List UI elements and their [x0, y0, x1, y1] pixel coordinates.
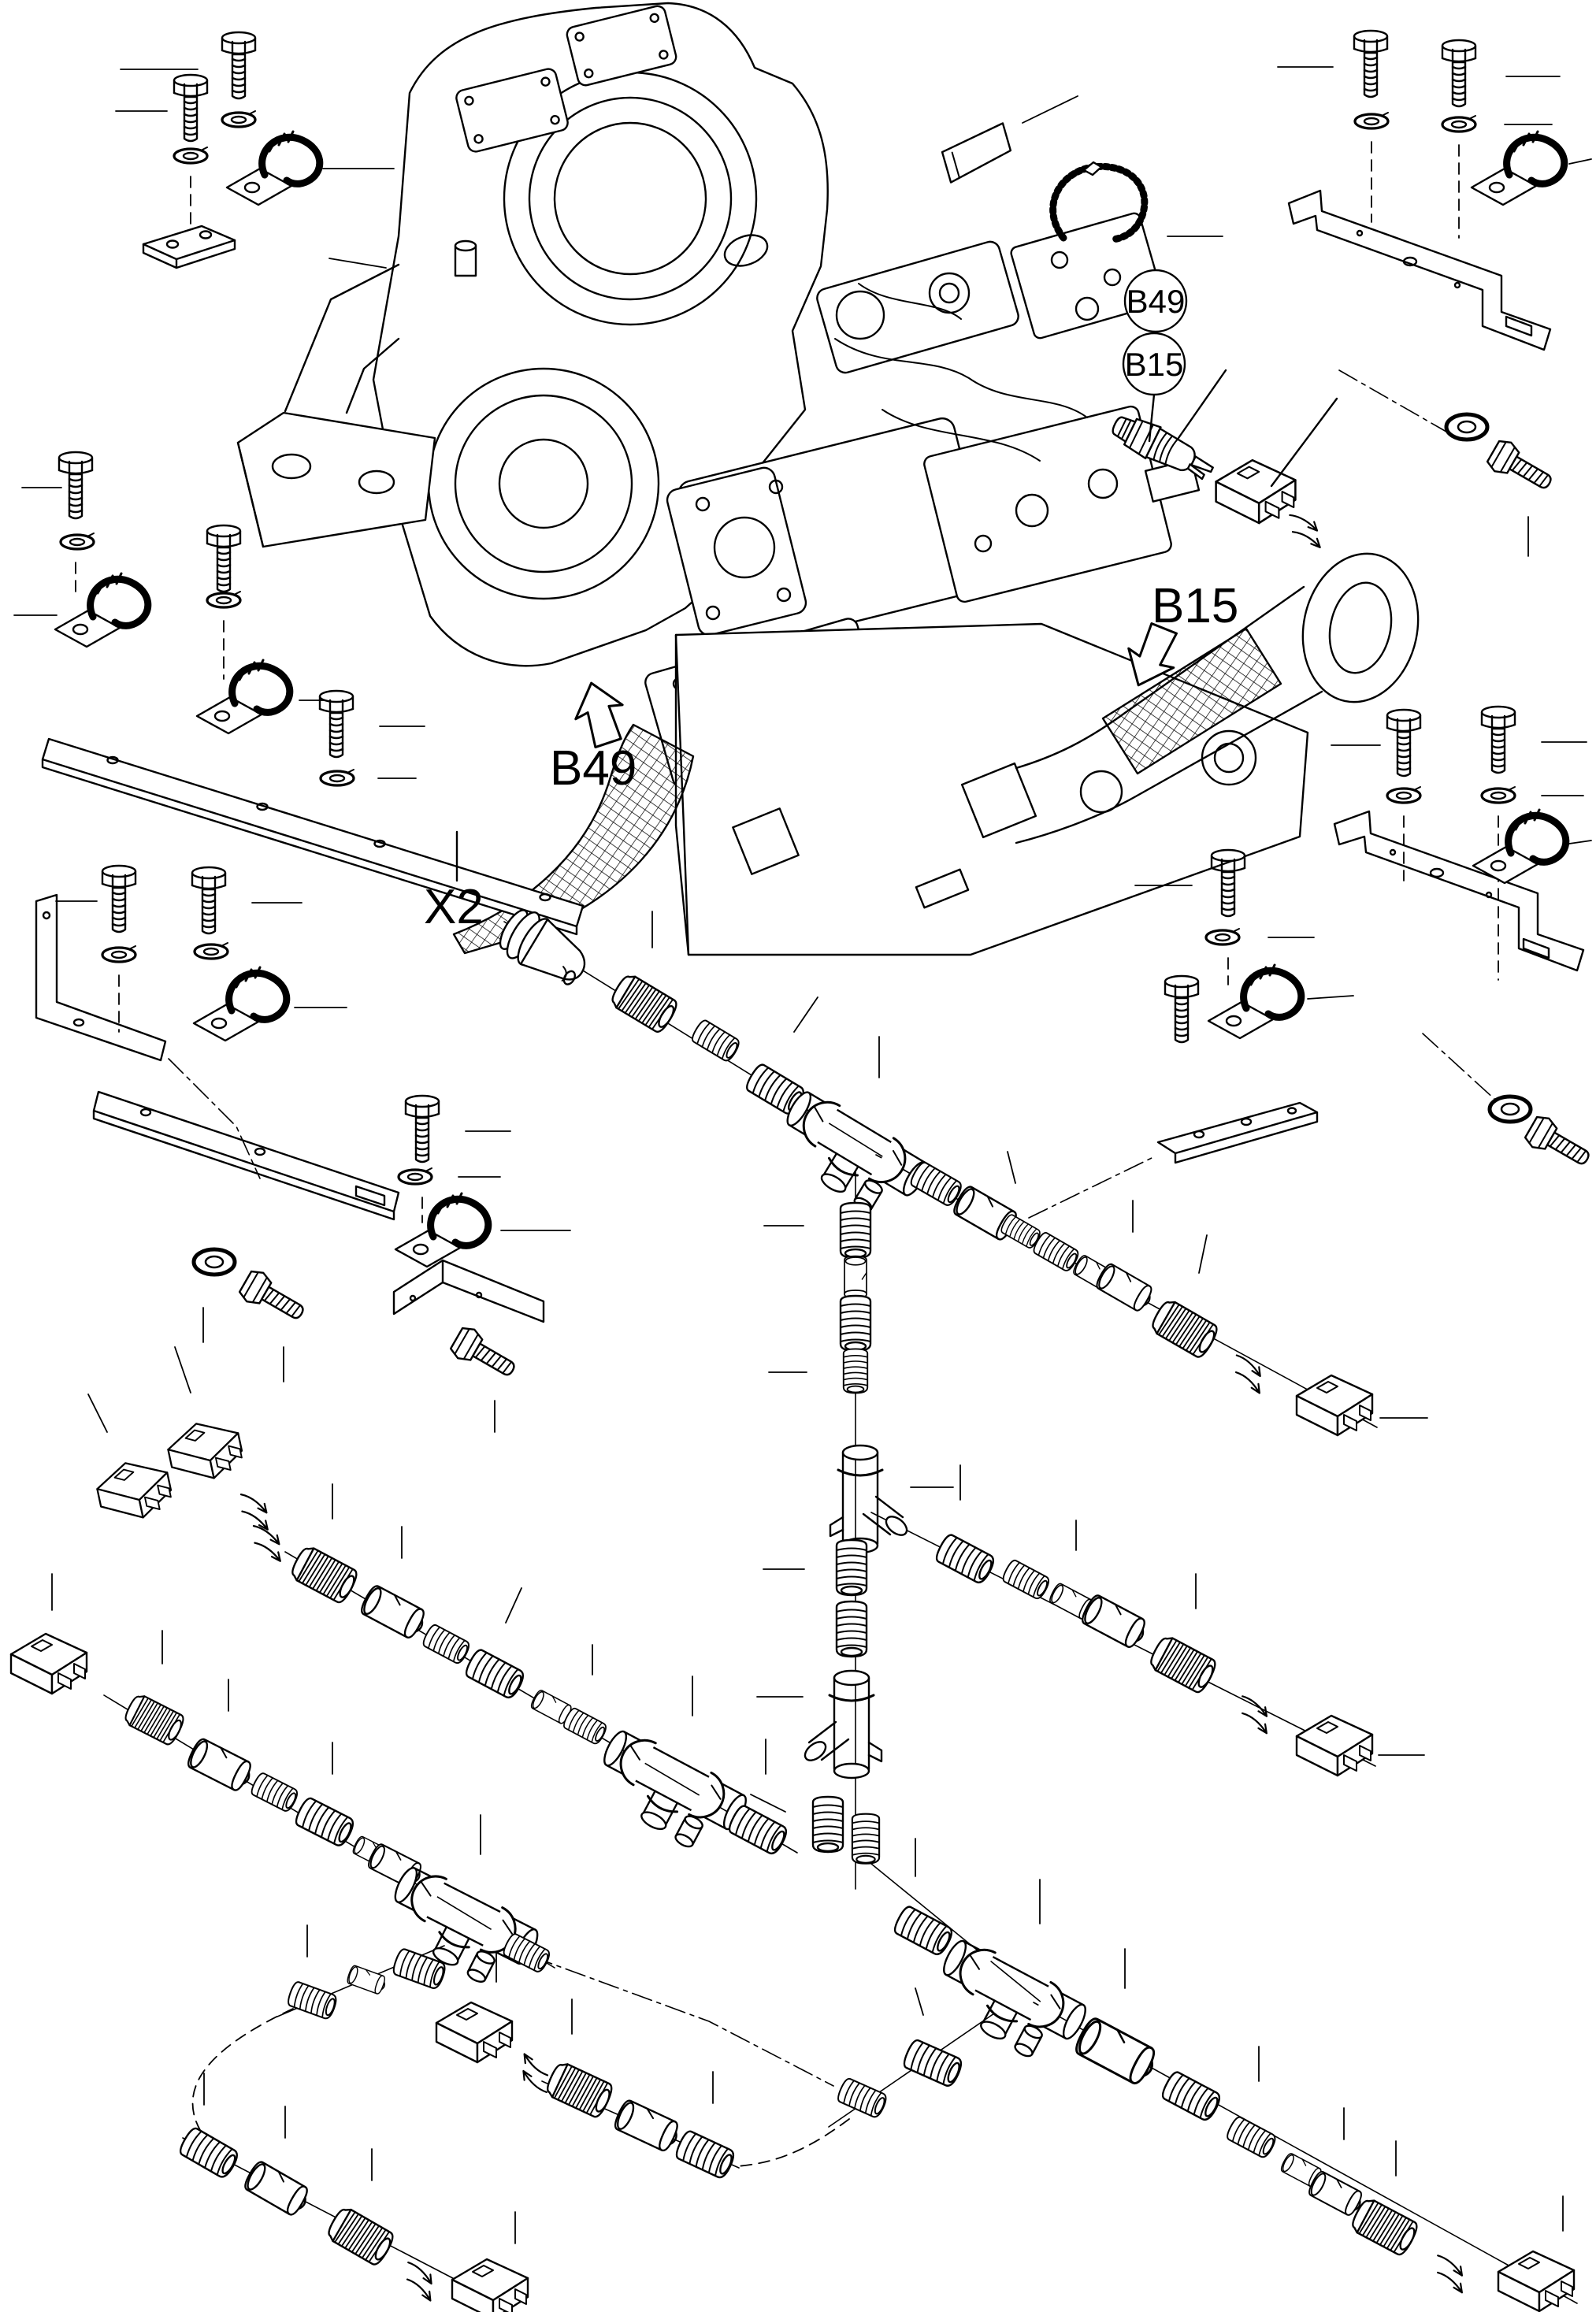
hex-bolt [1354, 31, 1387, 97]
part-leader-line [329, 258, 386, 268]
threaded-fitting [1001, 1559, 1052, 1601]
balloon-b49-label: B49 [1126, 283, 1186, 320]
hex-bolt [207, 525, 240, 592]
flat-washer [1490, 1097, 1531, 1122]
part-leader-line [915, 1988, 923, 2015]
diagram-page: B49 B15 B15 B49 X2 [0, 0, 1596, 2312]
lock-washer [1355, 113, 1388, 128]
lock-washer [61, 533, 94, 549]
wire-leads [1285, 515, 1326, 547]
threaded-fitting [852, 1814, 879, 1864]
cable-clamp [1472, 132, 1564, 205]
label-b15: B15 [1152, 579, 1238, 633]
hex-screw [1523, 1113, 1595, 1174]
part-leader-line [88, 1394, 107, 1432]
b49-pointer-arrow-icon [568, 677, 632, 750]
flat-washer [1446, 414, 1487, 440]
hex-bolt [1165, 976, 1198, 1042]
hex-bolt [320, 691, 353, 757]
tee-fitting [584, 1724, 752, 1863]
cable-clamp [197, 660, 290, 733]
threaded-fitting [837, 1601, 867, 1657]
cable-clamp [194, 967, 287, 1041]
two-pin-connector [164, 1416, 246, 1486]
cable-clamp [55, 573, 148, 647]
coupling-sleeve [185, 1737, 255, 1794]
wire-leads [233, 1494, 276, 1530]
part-leader-line [1569, 841, 1591, 844]
lock-washer [399, 1168, 432, 1184]
coupling-sleeve [1094, 1262, 1156, 1313]
lock-washer [321, 770, 354, 785]
lock-washer [195, 943, 228, 959]
two-pin-connector [436, 2002, 512, 2062]
lock-washer [1206, 929, 1239, 944]
threaded-fitting [177, 2126, 240, 2180]
knurled-coupling-nut [544, 2060, 614, 2119]
knurled-coupling-nut [288, 1544, 359, 1605]
tee-fitting [923, 1934, 1092, 2073]
part-leader-line [1199, 1235, 1207, 1273]
lock-washer [174, 147, 207, 163]
threaded-fitting [1160, 2070, 1223, 2122]
hex-screw [1485, 437, 1557, 498]
chain-centerline [871, 1864, 1059, 2017]
threaded-fitting [293, 1796, 356, 1848]
hex-screw [448, 1324, 521, 1385]
two-pin-connector [1297, 1375, 1372, 1435]
coupling-sleeve [844, 1256, 867, 1300]
balloon-b15-label: B15 [1125, 346, 1184, 383]
coupling-sleeve [1080, 1594, 1150, 1650]
hex-bolt [1442, 40, 1475, 106]
threaded-fitting [901, 2039, 963, 2088]
knurled-coupling-nut [325, 2205, 396, 2267]
clamp-plate [143, 226, 235, 268]
wire-leads [1233, 1696, 1276, 1733]
knurled-coupling-nut [1149, 1297, 1220, 1360]
hex-bolt [1482, 707, 1515, 773]
hex-bolt [406, 1096, 439, 1162]
threaded-fitting [1225, 2115, 1278, 2159]
label-b49: B49 [550, 741, 637, 796]
part-leader-line [1008, 1152, 1015, 1183]
flat-washer [194, 1249, 235, 1275]
label-tag [939, 123, 1015, 182]
threaded-fitting [837, 1540, 867, 1595]
coupling-sleeve [359, 1584, 429, 1641]
hex-bolt [1387, 710, 1420, 776]
two-pin-connector [93, 1455, 175, 1526]
threaded-fitting [841, 1296, 870, 1351]
knurled-coupling-nut [1147, 1634, 1218, 1694]
part-leader-line [794, 997, 818, 1032]
cable-clamp [395, 1193, 488, 1267]
label-x2: X2 [424, 880, 484, 934]
threaded-fitting [933, 1533, 997, 1585]
threaded-fitting [421, 1624, 472, 1665]
threaded-fitting [562, 1707, 608, 1746]
cable-clamp [1473, 810, 1566, 883]
threaded-fitting [463, 1648, 526, 1700]
lock-washer [102, 946, 135, 962]
coupling-sleeve [1073, 2016, 1160, 2087]
two-pin-connector [11, 1634, 87, 1694]
threaded-fitting [690, 1019, 741, 1063]
lock-washer [1482, 787, 1515, 803]
hex-bolt [192, 867, 225, 933]
part-leader-line [1023, 96, 1078, 123]
hex-bolt [174, 75, 207, 141]
lock-washer [1387, 787, 1420, 803]
cable-clamp [227, 132, 320, 205]
hex-bolt [102, 866, 135, 932]
coupling-sleeve [346, 1965, 388, 1995]
part-leader-line [1308, 996, 1353, 999]
knurled-coupling-nut [608, 972, 680, 1035]
part-leader-line [506, 1588, 521, 1623]
threaded-fitting [813, 1797, 843, 1852]
lock-washer [207, 592, 240, 607]
part-leader-line [175, 1347, 191, 1393]
part-leader-line [1569, 159, 1591, 164]
hex-bolt [59, 452, 92, 518]
lock-washer [222, 111, 255, 127]
exploded-parts-diagram: B49 B15 B15 B49 X2 [0, 0, 1596, 2312]
branch-fitting [802, 1671, 882, 1778]
wire-leads [246, 1526, 288, 1561]
threaded-fitting [674, 2129, 737, 2180]
two-pin-connector [452, 2259, 528, 2312]
branch-fitting [830, 1445, 910, 1553]
threaded-fitting [844, 1349, 867, 1393]
threaded-fitting [250, 1772, 300, 1813]
hex-bolt [1212, 850, 1245, 916]
cable-clamp [1208, 965, 1301, 1038]
two-pin-connector [1297, 1716, 1372, 1776]
coupling-sleeve [1307, 2170, 1365, 2218]
two-pin-connector [1498, 2251, 1574, 2311]
coupling-sleeve [612, 2099, 682, 2154]
threaded-fitting [841, 1203, 870, 1258]
coupling-sleeve [243, 2160, 312, 2218]
threaded-fitting [836, 2077, 889, 2119]
hex-screw [237, 1267, 310, 1328]
lock-washer [1442, 116, 1475, 132]
wire-leads [1428, 2255, 1472, 2292]
threaded-fitting [726, 1804, 789, 1856]
coupling-sleeve [366, 1843, 425, 1890]
wire-leads [1227, 1355, 1270, 1393]
part-leader-line [751, 1794, 785, 1812]
hex-bolt [222, 32, 255, 98]
threaded-fitting [286, 1980, 338, 2020]
threaded-fitting [892, 1905, 955, 1957]
